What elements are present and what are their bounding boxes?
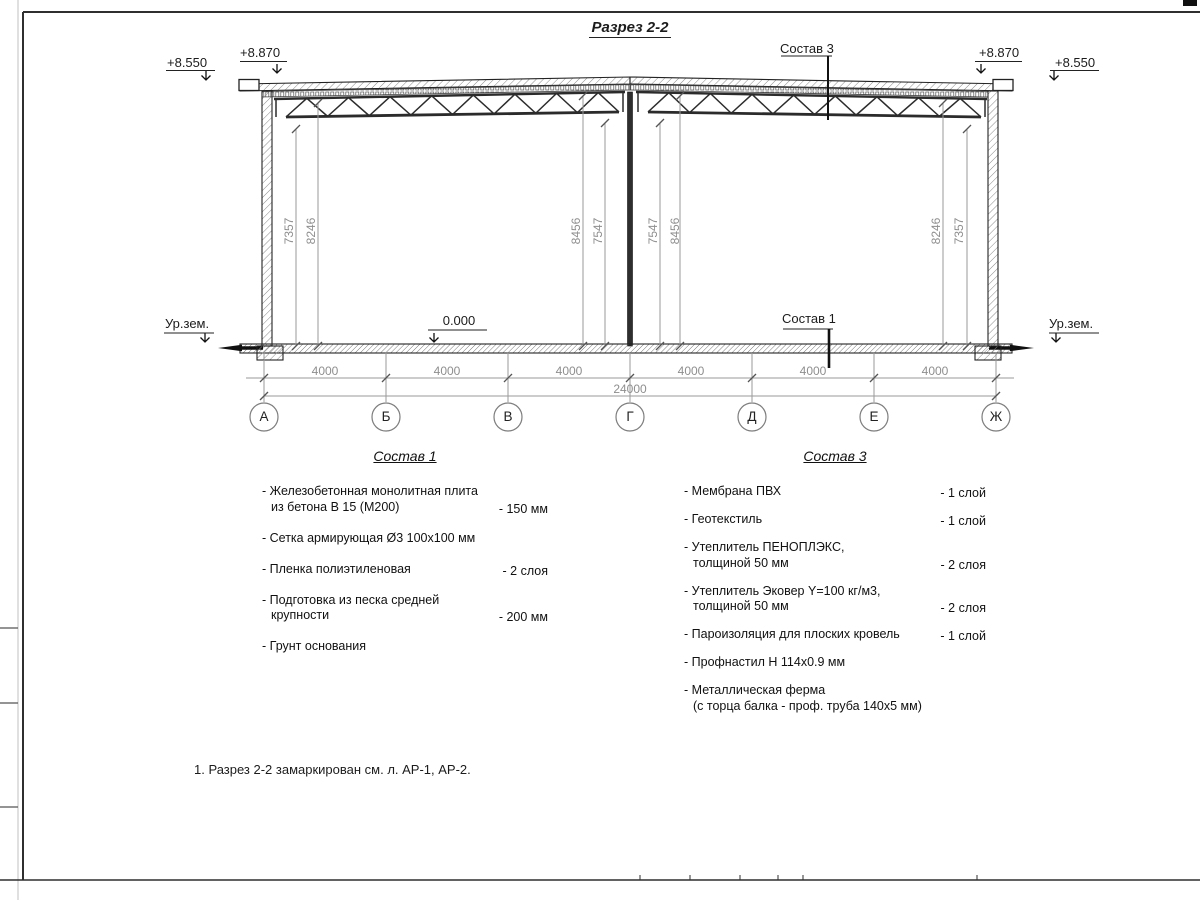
roof-composition-callout: Состав 3 — [780, 41, 834, 56]
legend-item-value: - 1 слой — [932, 486, 986, 500]
legend-item-value: - 2 слоя — [495, 564, 548, 578]
sheet-frame — [0, 0, 1200, 900]
level-mark-icon — [201, 333, 210, 342]
sheet-note: 1. Разрез 2-2 замаркирован см. л. АР-1, … — [194, 762, 471, 777]
legend-item: - Профнастил Н 114х0.9 мм — [684, 655, 986, 671]
walls — [262, 91, 998, 346]
legend-item-text: - Железобетонная монолитная плита из бет… — [262, 484, 478, 516]
axis-label-g: Г — [618, 409, 642, 425]
ground-level-label-right: Ур.зем. — [1049, 316, 1093, 331]
ground-level-label-left: Ур.зем. — [165, 316, 209, 331]
level-mark-icon — [273, 64, 282, 73]
legend-sostav-3: Состав 3 - Мембрана ПВХ- 1 слой - Геотек… — [684, 448, 986, 727]
legend-item: - Сетка армирующая Ø3 100х100 мм — [262, 531, 548, 547]
vdim-label: 8246 — [303, 201, 319, 261]
level-mark-icon — [1050, 71, 1059, 80]
legend-item-text: - Металлическая ферма (с торца балка - п… — [684, 683, 922, 715]
vdim-label: 8246 — [928, 201, 944, 261]
legend-item-text: - Профнастил Н 114х0.9 мм — [684, 655, 845, 671]
legend-item-value: - 1 слой — [932, 514, 986, 528]
legend-item: - Утеплитель ПЕНОПЛЭКС, толщиной 50 мм- … — [684, 540, 986, 572]
legend-item-text: - Сетка армирующая Ø3 100х100 мм — [262, 531, 475, 547]
span-dim-label: 4000 — [417, 364, 477, 378]
legend-item: - Подготовка из песка средней крупности-… — [262, 593, 548, 625]
drawing-sheet: { "title": "Разрез 2-2", "drawing": { "e… — [0, 0, 1200, 900]
floor-composition-callout: Состав 1 — [782, 311, 836, 326]
vdim-label: 7547 — [645, 201, 661, 261]
section-drawing — [0, 0, 1200, 900]
legend-item: - Грунт основания — [262, 639, 548, 655]
legend-item: - Металлическая ферма (с торца балка - п… — [684, 683, 986, 715]
legend-item-text: - Грунт основания — [262, 639, 366, 655]
corner-mark — [1183, 0, 1197, 6]
level-mark-icon — [977, 64, 986, 73]
legend-item: - Утеплитель Эковер Y=100 кг/м3, толщино… — [684, 584, 986, 616]
legend-1-title: Состав 1 — [262, 448, 548, 464]
span-dim-label: 4000 — [295, 364, 355, 378]
legend-3-title-text: Состав 3 — [803, 448, 866, 464]
zero-level-label: 0.000 — [430, 313, 488, 328]
level-mark-icon — [202, 71, 211, 80]
axis-label-d: Д — [740, 409, 764, 425]
legend-item-value: - 200 мм — [491, 610, 548, 624]
legend-item: - Пленка полиэтиленовая- 2 слоя — [262, 562, 548, 578]
legend-item-value: - 2 слоя — [933, 558, 986, 572]
wall-right — [988, 91, 998, 346]
legend-item-text: - Мембрана ПВХ — [684, 484, 781, 500]
legend-item: - Пароизоляция для плоских кровель- 1 сл… — [684, 627, 986, 643]
legend-item: - Геотекстиль- 1 слой — [684, 512, 986, 528]
legend-1-title-text: Состав 1 — [373, 448, 436, 464]
vdim-label: 7357 — [281, 201, 297, 261]
elevation-label-left-inner: +8.870 — [240, 45, 280, 60]
legend-item-text: - Утеплитель ПЕНОПЛЭКС, толщиной 50 мм — [684, 540, 844, 572]
elevation-label-right-outer: +8.550 — [1055, 55, 1095, 70]
legend-item-value: - 1 слой — [932, 629, 986, 643]
span-dim-label: 4000 — [783, 364, 843, 378]
page-title: Разрез 2-2 — [545, 19, 715, 37]
legend-item-text: - Пароизоляция для плоских кровель — [684, 627, 900, 643]
legend-item-value: - 150 мм — [491, 502, 548, 516]
axis-label-b: Б — [374, 409, 398, 425]
axis-label-a: А — [252, 409, 276, 425]
span-dim-label: 4000 — [661, 364, 721, 378]
elevation-label-left-outer: +8.550 — [167, 55, 207, 70]
legend-item-text: - Утеплитель Эковер Y=100 кг/м3, толщино… — [684, 584, 880, 616]
span-dim-label: 4000 — [539, 364, 599, 378]
legend-item-text: - Подготовка из песка средней крупности — [262, 593, 439, 625]
floor-slab — [240, 344, 1012, 353]
vdim-label: 7547 — [590, 201, 606, 261]
legend-item: - Мембрана ПВХ- 1 слой — [684, 484, 986, 500]
page-title-text: Разрез 2-2 — [589, 19, 670, 38]
legend-item: - Железобетонная монолитная плита из бет… — [262, 484, 548, 516]
level-mark-icon — [430, 333, 439, 342]
vdim-label: 7357 — [951, 201, 967, 261]
axis-label-v: В — [496, 409, 520, 425]
legend-item-text: - Пленка полиэтиленовая — [262, 562, 411, 578]
axis-label-e: Е — [862, 409, 886, 425]
vdim-label: 8456 — [568, 201, 584, 261]
legend-item-text: - Геотекстиль — [684, 512, 763, 528]
legend-3-title: Состав 3 — [684, 448, 986, 464]
level-mark-icon — [1052, 333, 1061, 342]
span-dim-label: 4000 — [905, 364, 965, 378]
elevation-label-right-inner: +8.870 — [979, 45, 1019, 60]
legend-item-value: - 2 слоя — [933, 601, 986, 615]
legend-sostav-1: Состав 1 - Железобетонная монолитная пли… — [262, 448, 548, 670]
vdim-label: 8456 — [667, 201, 683, 261]
total-dim-label: 24000 — [600, 382, 660, 396]
wall-left — [262, 91, 272, 346]
axis-label-zh: Ж — [984, 409, 1008, 425]
column-center — [628, 92, 633, 346]
